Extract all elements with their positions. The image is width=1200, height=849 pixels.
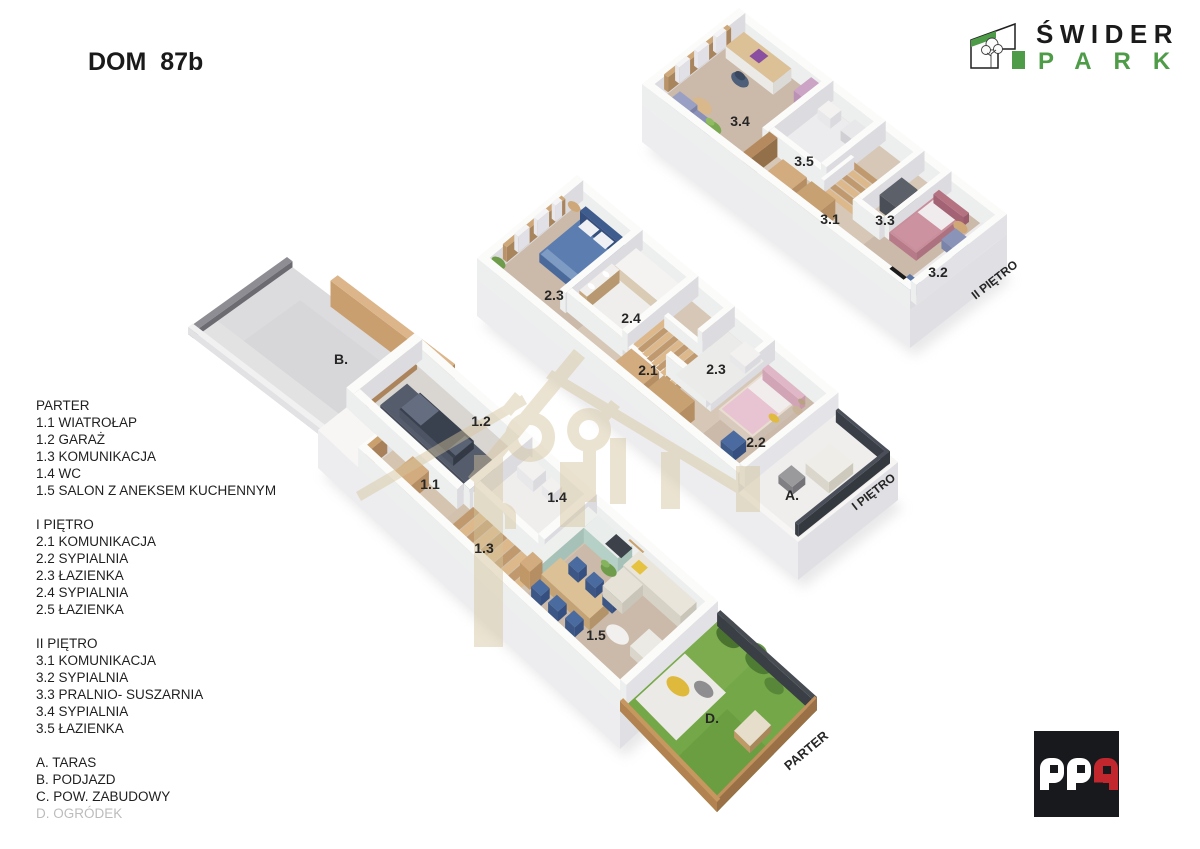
svg-text:2.2 SYPIALNIA: 2.2 SYPIALNIA [36, 551, 128, 566]
svg-text:2.3: 2.3 [706, 361, 726, 377]
svg-text:1.4 WC: 1.4 WC [36, 466, 81, 481]
svg-text:1.1: 1.1 [420, 476, 440, 492]
svg-text:B.: B. [334, 351, 348, 367]
svg-text:A.: A. [785, 487, 799, 503]
svg-text:3.5: 3.5 [794, 153, 814, 169]
svg-text:1.5: 1.5 [586, 627, 606, 643]
svg-text:3.1 KOMUNIKACJA: 3.1 KOMUNIKACJA [36, 653, 156, 668]
svg-text:DOM 87b: DOM 87b [88, 48, 203, 76]
svg-text:A. TARAS: A. TARAS [36, 755, 96, 770]
svg-text:B. PODJAZD: B. PODJAZD [36, 772, 116, 787]
svg-text:ŚWIDER: ŚWIDER [1036, 19, 1179, 49]
svg-text:2.2: 2.2 [746, 434, 766, 450]
svg-text:2.4 SYPIALNIA: 2.4 SYPIALNIA [36, 585, 128, 600]
svg-text:2.1 KOMUNIKACJA: 2.1 KOMUNIKACJA [36, 534, 156, 549]
svg-text:C. POW. ZABUDOWY: C. POW. ZABUDOWY [36, 789, 170, 804]
svg-text:I PIĘTRO: I PIĘTRO [36, 517, 94, 532]
svg-text:2.3: 2.3 [544, 287, 564, 303]
svg-text:1.3 KOMUNIKACJA: 1.3 KOMUNIKACJA [36, 449, 156, 464]
svg-text:3.3: 3.3 [875, 212, 895, 228]
svg-text:3.2 SYPIALNIA: 3.2 SYPIALNIA [36, 670, 128, 685]
svg-text:D. OGRÓDEK: D. OGRÓDEK [36, 806, 122, 821]
svg-text:3.1: 3.1 [820, 211, 840, 227]
svg-text:1.5 SALON Z ANEKSEM KUCHENNYM: 1.5 SALON Z ANEKSEM KUCHENNYM [36, 483, 276, 498]
svg-text:D.: D. [705, 710, 719, 726]
svg-text:3.4 SYPIALNIA: 3.4 SYPIALNIA [36, 704, 128, 719]
svg-text:1.2: 1.2 [471, 413, 491, 429]
svg-text:2.1: 2.1 [638, 362, 658, 378]
svg-text:3.3 PRALNIO- SUSZARNIA: 3.3 PRALNIO- SUSZARNIA [36, 687, 203, 702]
svg-text:3.4: 3.4 [730, 113, 750, 129]
svg-text:1.4: 1.4 [547, 489, 567, 505]
svg-text:3.5 ŁAZIENKA: 3.5 ŁAZIENKA [36, 721, 124, 736]
svg-text:PARK: PARK [1038, 48, 1192, 75]
svg-text:2.5 ŁAZIENKA: 2.5 ŁAZIENKA [36, 602, 124, 617]
svg-text:2.3 ŁAZIENKA: 2.3 ŁAZIENKA [36, 568, 124, 583]
svg-text:1.3: 1.3 [474, 540, 494, 556]
svg-text:1.2 GARAŻ: 1.2 GARAŻ [36, 432, 105, 447]
svg-text:II PIĘTRO: II PIĘTRO [36, 636, 98, 651]
svg-text:1.1 WIATROŁAP: 1.1 WIATROŁAP [36, 415, 137, 430]
svg-text:3.2: 3.2 [928, 264, 948, 280]
svg-text:2.4: 2.4 [621, 310, 641, 326]
svg-text:PARTER: PARTER [36, 398, 90, 413]
